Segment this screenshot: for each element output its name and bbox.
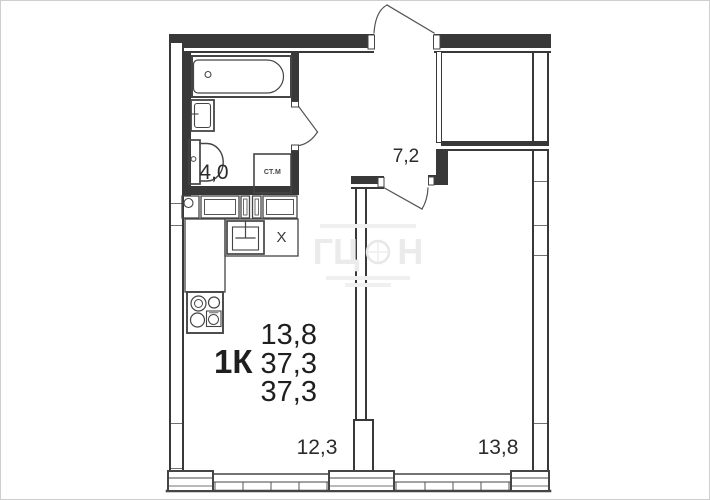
room-label-bathroom: 4,0 (187, 162, 241, 183)
bedroom-door (385, 188, 429, 209)
room-label-kitchen-living: 12,3 (289, 437, 345, 458)
kitchen-sink-tap (236, 221, 255, 238)
bathroom-door (299, 107, 318, 146)
window-bedroom (394, 474, 511, 490)
floor-plan-screenshot: ГЦ Н 4,0 СТ.М 7,2 Х 12,3 13,8 13,8 1К 37… (0, 0, 710, 500)
bathtub-drain (205, 72, 211, 78)
fixtures-layer (1, 1, 710, 500)
bathtub (192, 56, 291, 97)
room-label-hallway: 7,2 (379, 147, 433, 166)
entry-door (374, 5, 434, 33)
kitchen-counter-row (182, 196, 297, 218)
window-kitchen-living (213, 474, 329, 490)
counter-sink-circle (184, 199, 193, 208)
summary-area-bottom: 37,3 (217, 378, 317, 407)
apartment-type-label: 1К (214, 343, 253, 381)
washing-machine-label: СТ.М (254, 169, 291, 176)
kitchen-x-marker: Х (265, 230, 298, 245)
room-label-bedroom: 13,8 (470, 437, 526, 458)
bathroom-sink (191, 100, 214, 131)
